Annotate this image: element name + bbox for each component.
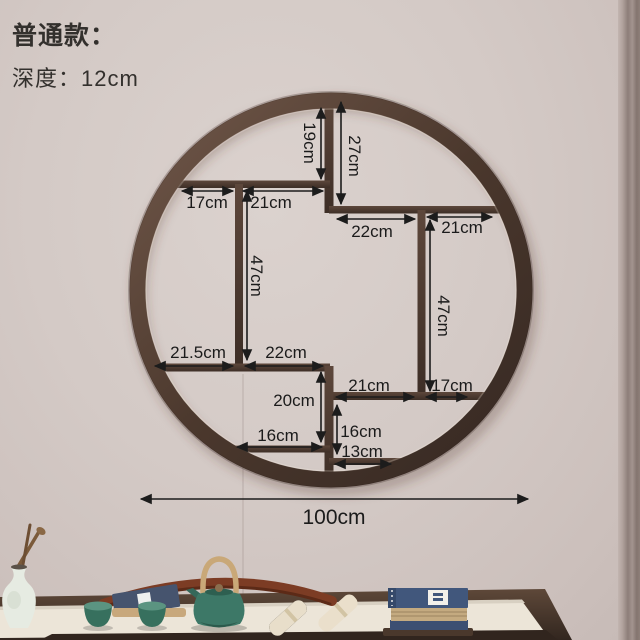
vase-mouth [11,565,27,570]
dim-label-19cm: 19cm [300,122,319,164]
dim-label-22cm-lower: 22cm [265,343,307,362]
shelf-divider-top-center [325,95,334,213]
vase-highlight [7,591,21,609]
cup-rim [84,602,112,611]
dim-label-47cm-right: 47cm [434,295,453,337]
teapot-body [194,591,245,627]
book-title-label [428,590,448,605]
book-stack [383,588,473,636]
book-bottom-blue [390,620,468,630]
tea-table-scene [0,525,572,640]
dim-label-21cm-lower: 21cm [348,376,390,395]
product-dimension-image: 普通款： 深度：12cm [0,0,640,640]
dim-label-21-5cm: 21.5cm [170,343,226,362]
shelf-divider-right [418,210,426,397]
tea-cup-left [83,602,113,632]
dim-label-21cm-upper-far-right: 21cm [441,218,483,237]
teapot-knob [215,584,223,592]
book-pages [391,607,467,621]
dim-label-47cm-left: 47cm [247,255,266,297]
dim-label-16cm-left: 16cm [257,426,299,445]
dim-label-22cm-upper-right: 22cm [351,222,393,241]
dim-label-17cm-lower: 17cm [431,376,473,395]
round-wall-shelf [129,92,533,488]
tea-cup-right [137,602,167,632]
book-label-mark [433,593,443,596]
shelf-board-upper-left [158,181,330,189]
dim-label-13cm: 13cm [341,442,383,461]
cup-rim [138,602,166,611]
dim-label-27cm: 27cm [345,135,364,177]
dim-label-16cm-right: 16cm [340,422,382,441]
shelf-divider-left [235,184,243,367]
diagram-canvas: 19cm 27cm 17cm 21cm 22cm 21cm 47cm 47cm … [0,0,640,640]
dim-label-17cm-upper: 17cm [186,193,228,212]
dim-label-20cm: 20cm [273,391,315,410]
shelf-board-lower-left [148,364,330,372]
shelf-board-upper-right [329,206,505,214]
book-label-mark [433,598,443,601]
dim-label-21cm-upper-left: 21cm [250,193,292,212]
dim-label-100cm: 100cm [302,506,365,529]
